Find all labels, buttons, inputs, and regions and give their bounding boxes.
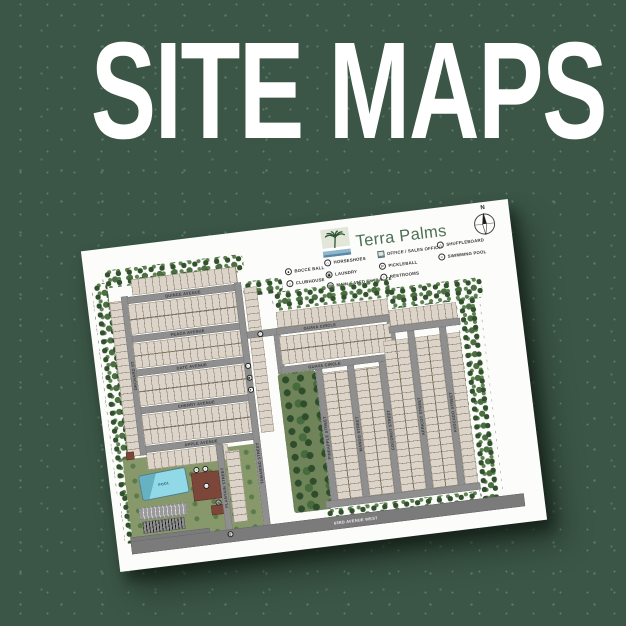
site-map-sheet: Terra Palms N ● BOCCE BALL ⌂ CLUBHOUSE ∩…	[81, 199, 547, 572]
page-title: SITE MAPS	[91, 22, 535, 160]
site-plan: POOL QUINCE AVENUE PEACH AVENUE DATE AVE…	[81, 199, 547, 572]
office-sales-building	[126, 451, 135, 460]
pool-label: POOL	[158, 481, 170, 487]
